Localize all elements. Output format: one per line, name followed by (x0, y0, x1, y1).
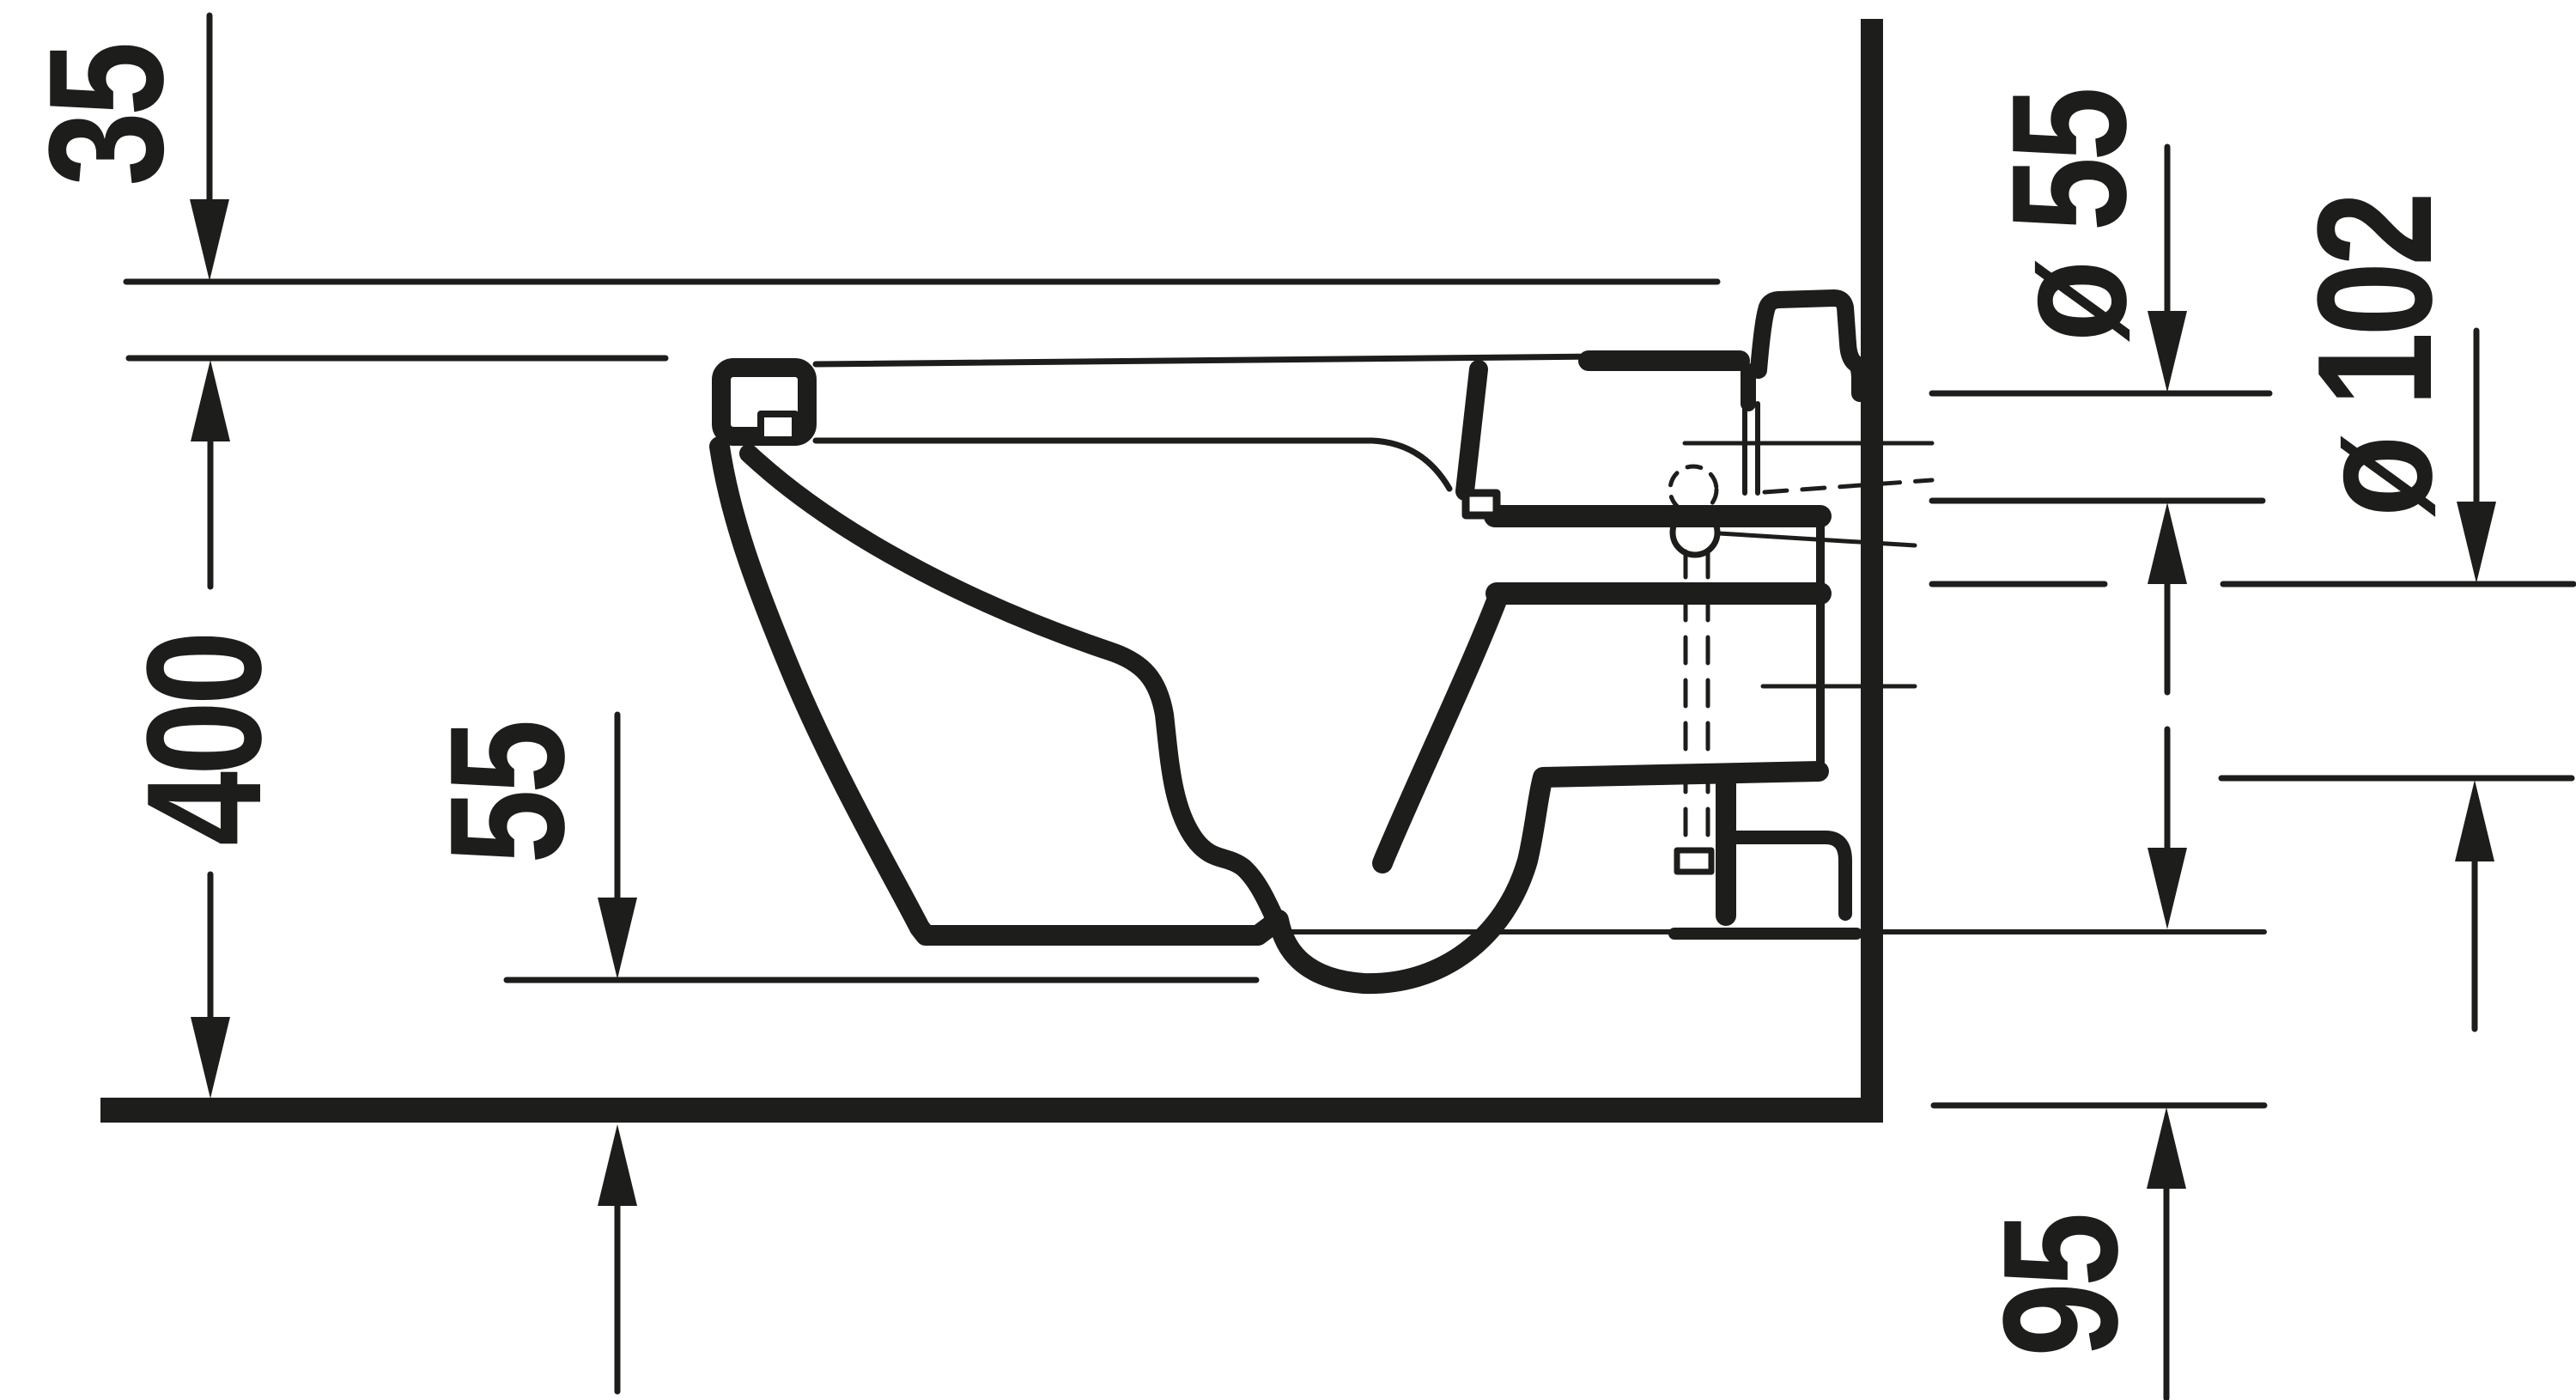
dim-label-400: 400 (123, 635, 286, 845)
bolt-end (1677, 850, 1711, 872)
dim-label-dia102: ø 102 (2293, 196, 2457, 517)
bowl-inner-profile (749, 453, 1281, 932)
dim-label-95: 95 (1979, 1216, 2142, 1356)
buffer-notch (761, 414, 795, 440)
dim-400-arrow-down-icon (191, 1017, 230, 1099)
dim-dia55-arrow-up-icon (2148, 502, 2187, 584)
toilet-section-diagram (0, 0, 2576, 1400)
seat-bumper (1466, 493, 1497, 515)
hidden-diagonal-line (1765, 480, 1932, 492)
dim-95-arrow-up-icon (2147, 1107, 2186, 1189)
dim-label-dia55: ø 55 (1988, 91, 2151, 342)
dim-label-35: 35 (25, 46, 188, 186)
dim-95-arrow-down-icon (2148, 848, 2187, 929)
trap-weir-wall (1382, 596, 1498, 863)
flush-pipe-connector (1745, 404, 1758, 493)
bowl-top-line (816, 441, 1449, 489)
dim-400-arrow-up-icon (191, 360, 230, 441)
dim-label-55: 55 (426, 723, 589, 863)
floor-arrow-up-icon (598, 1124, 637, 1206)
technical-drawing-canvas: 35 400 55 ø 55 ø 102 95 (0, 0, 2576, 1400)
wall-bar (1861, 19, 1883, 1099)
cistern-cap (1759, 298, 1860, 393)
floor-bar (100, 1098, 1883, 1123)
dim-35-arrow-down-icon (190, 199, 229, 281)
outlet-elbow (1736, 837, 1845, 914)
cover-back-left-edge (1465, 369, 1479, 491)
toilet-section-outline (720, 298, 1860, 983)
dim-dia102-arrow-up-icon (2455, 780, 2494, 861)
dim-55-arrow-down-icon (598, 898, 637, 979)
